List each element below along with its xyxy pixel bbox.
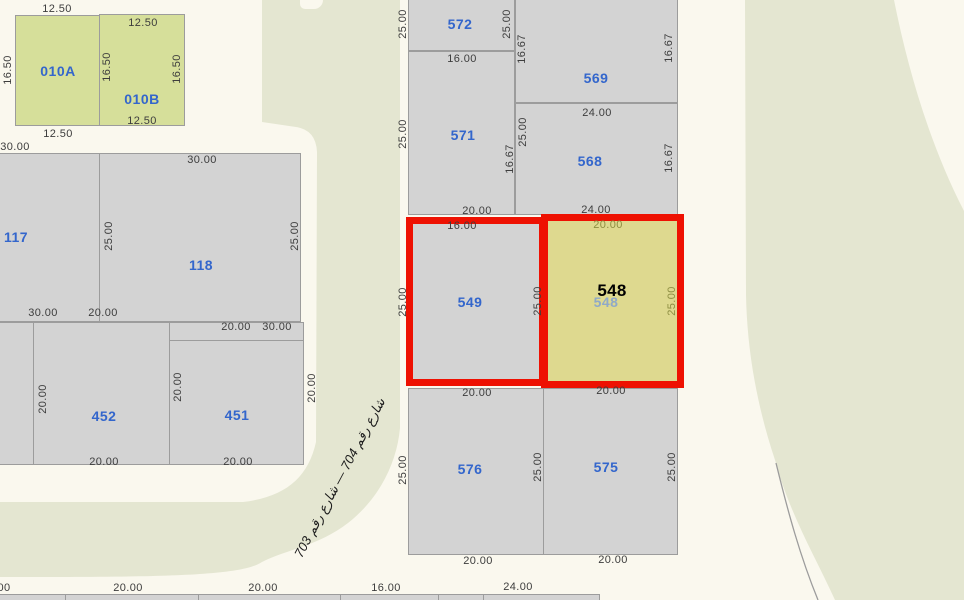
dimension-label: 20.00 — [462, 205, 492, 217]
dimension-label: 20.00 — [463, 555, 493, 567]
parcel-label-571: 571 — [451, 127, 476, 143]
parcel-452[interactable] — [33, 322, 170, 465]
parcel-label-117: 117 — [4, 229, 28, 245]
dimension-label: 25.00 — [103, 221, 115, 251]
parcel-label-010B: 010B — [124, 91, 159, 107]
parcel-boundary-line — [169, 340, 304, 341]
dimension-label: 20.00 — [172, 372, 184, 402]
dimension-label: 16.67 — [663, 143, 675, 173]
parcel-label-451: 451 — [225, 407, 250, 423]
parcel-map-canvas[interactable]: 12.5012.5016.5016.5016.5012.5012.50010A0… — [0, 0, 964, 600]
dimension-label: 16.00 — [447, 53, 477, 65]
green-area-right — [745, 0, 964, 600]
dimension-label: 24.00 — [503, 581, 533, 593]
dimension-label: 25.00 — [289, 221, 301, 251]
dimension-label: 25.00 — [397, 455, 409, 485]
dimension-label: 16.67 — [663, 33, 675, 63]
dimension-label: 16.67 — [504, 144, 516, 174]
parcel-boundary-line — [438, 594, 439, 600]
dimension-label: 12.50 — [42, 3, 72, 15]
parcel-label-452: 452 — [92, 408, 117, 424]
dimension-label: 16.50 — [171, 54, 183, 84]
dimension-label: 20.00 — [462, 387, 492, 399]
dimension-label: 30.00 — [187, 154, 217, 166]
parcel-451[interactable] — [169, 322, 304, 465]
dimension-label: 20.00 — [596, 385, 626, 397]
dimension-label: 20.00 — [37, 384, 49, 414]
dimension-label: 12.50 — [43, 128, 73, 140]
dimension-label: 20.00 — [593, 219, 623, 231]
dimension-label: 30.00 — [28, 307, 58, 319]
dimension-label: 20.00 — [223, 456, 253, 468]
parcel-label-568: 568 — [578, 153, 603, 169]
parcel-label-576: 576 — [458, 461, 483, 477]
dimension-label: 30.00 — [262, 321, 292, 333]
parcel-label-572: 572 — [448, 16, 473, 32]
dimension-label: 25.00 — [397, 119, 409, 149]
dimension-label: 16.50 — [101, 52, 113, 82]
dimension-label: 00 — [0, 582, 11, 594]
dimension-label: 12.50 — [128, 17, 158, 29]
dimension-label: 25.00 — [501, 9, 513, 39]
selected-parcel-label-548: 548 — [597, 281, 626, 301]
parcel-bottom-strip[interactable] — [0, 594, 600, 600]
dimension-label: 24.00 — [582, 107, 612, 119]
parcel-118[interactable] — [99, 153, 301, 322]
parcel-569[interactable] — [515, 0, 678, 103]
parcel-label-575: 575 — [594, 459, 619, 475]
parcel-label-569: 569 — [584, 70, 609, 86]
dimension-label: 25.00 — [666, 286, 678, 316]
dimension-label: 12.50 — [127, 115, 157, 127]
dimension-label: 16.00 — [447, 220, 477, 232]
dimension-label: 25.00 — [666, 452, 678, 482]
dimension-label: 20.00 — [88, 307, 118, 319]
dimension-label: 20.00 — [248, 582, 278, 594]
dimension-label: 25.00 — [397, 9, 409, 39]
dimension-label: 16.67 — [516, 34, 528, 64]
parcel-label-118: 118 — [189, 257, 213, 273]
parcel-label-010A: 010A — [40, 63, 75, 79]
parcel-boundary-line — [65, 594, 66, 600]
dimension-label: 16.50 — [2, 55, 14, 85]
parcel-boundary-line — [483, 594, 484, 600]
parcel-left-sliver[interactable] — [0, 322, 34, 465]
dimension-label: 25.00 — [397, 287, 409, 317]
dimension-label: 24.00 — [581, 204, 611, 216]
dimension-label: 25.00 — [532, 452, 544, 482]
parcel-boundary-line — [340, 594, 341, 600]
dimension-label: 25.00 — [517, 117, 529, 147]
dimension-label: 20.00 — [221, 321, 251, 333]
dimension-label: 30.00 — [0, 141, 30, 153]
dimension-label: 20.00 — [89, 456, 119, 468]
dimension-label: 20.00 — [113, 582, 143, 594]
dimension-label: 20.00 — [306, 373, 318, 403]
parcel-boundary-line — [198, 594, 199, 600]
dimension-label: 20.00 — [598, 554, 628, 566]
dimension-label: 25.00 — [532, 286, 544, 316]
dimension-label: 16.00 — [371, 582, 401, 594]
parcel-label-549: 549 — [458, 294, 483, 310]
